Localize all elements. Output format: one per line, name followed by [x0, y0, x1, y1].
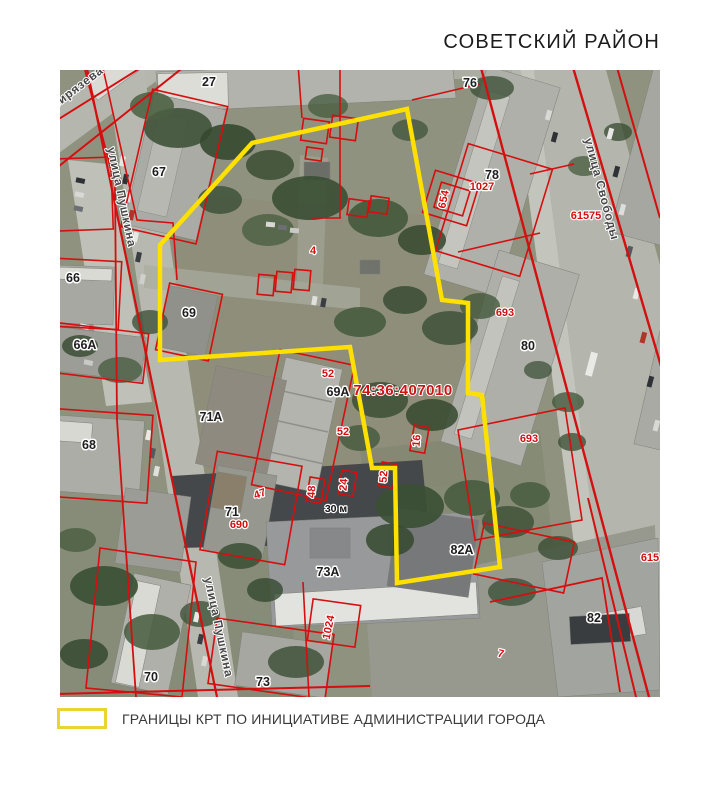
label-building-68: 68 — [82, 438, 96, 452]
label-building-82a: 82А — [451, 543, 474, 557]
label-parcel-61575: 61575 — [571, 210, 602, 222]
label-parcel-4: 4 — [310, 245, 317, 257]
label-distance-30m: 30 м — [325, 503, 348, 515]
label-parcel-52-c: 52 — [378, 470, 391, 483]
label-building-73: 73 — [256, 675, 270, 689]
label-parcel-690: 690 — [230, 519, 248, 531]
label-parcel-16: 16 — [411, 434, 424, 447]
label-building-27: 27 — [202, 75, 216, 89]
label-parcel-615: 615 — [641, 552, 659, 564]
label-parcel-693-south: 693 — [520, 433, 538, 445]
label-parcel-52-b: 52 — [337, 426, 349, 438]
label-parcel-1027: 1027 — [470, 181, 494, 193]
label-building-66a: 66А — [74, 338, 97, 352]
label-building-67: 67 — [152, 165, 166, 179]
label-building-82: 82 — [587, 611, 601, 625]
label-parcel-693-north: 693 — [496, 307, 514, 319]
cadastral-quarter-label: 74:36:407010 — [353, 382, 452, 399]
label-building-71: 71 — [225, 505, 239, 519]
label-building-78: 78 — [485, 168, 499, 182]
satellite-map: мирязева улица Пушкина улица Свободы ули… — [60, 70, 660, 697]
label-parcel-52-a: 52 — [322, 368, 334, 380]
label-building-70: 70 — [144, 670, 158, 684]
label-building-69a: 69А — [327, 385, 350, 399]
page: СОВЕТСКИЙ РАЙОН — [0, 0, 719, 800]
legend-label: ГРАНИЦЫ КРТ ПО ИНИЦИАТИВЕ АДМИНИСТРАЦИИ … — [122, 711, 545, 727]
legend-boundary-swatch — [57, 708, 107, 729]
label-parcel-48: 48 — [306, 485, 319, 498]
label-building-73a: 73А — [317, 565, 340, 579]
label-parcel-24: 24 — [338, 477, 351, 491]
district-title: СОВЕТСКИЙ РАЙОН — [443, 31, 660, 54]
label-building-71a: 71А — [200, 410, 223, 424]
label-building-80: 80 — [521, 339, 535, 353]
label-building-76: 76 — [463, 76, 477, 90]
label-building-66: 66 — [66, 271, 80, 285]
label-building-69: 69 — [182, 306, 196, 320]
legend: ГРАНИЦЫ КРТ ПО ИНИЦИАТИВЕ АДМИНИСТРАЦИИ … — [57, 708, 545, 729]
map-canvas: мирязева улица Пушкина улица Свободы ули… — [60, 70, 660, 697]
